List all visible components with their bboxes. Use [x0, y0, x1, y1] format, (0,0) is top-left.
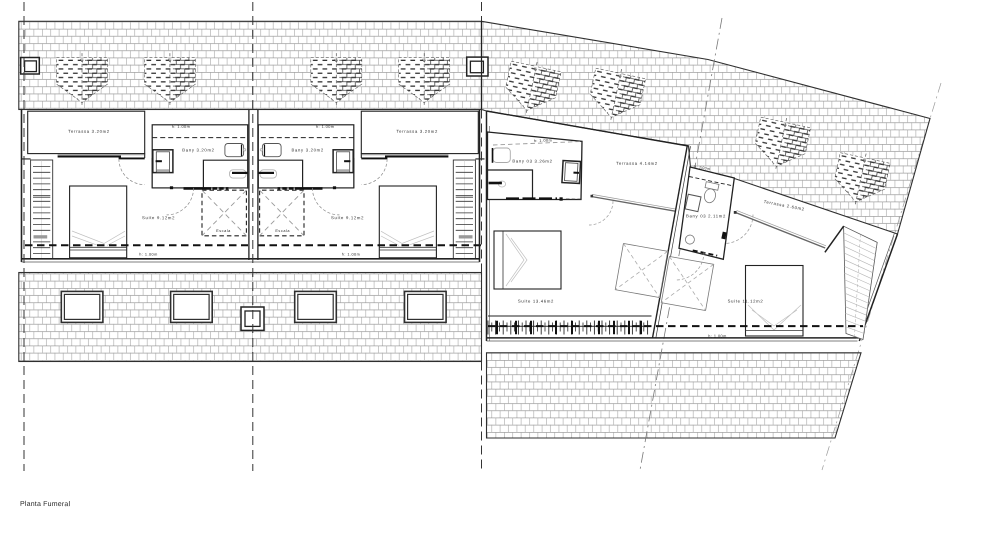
svg-text:Terrassa 3.20m2: Terrassa 3.20m2 [396, 129, 438, 134]
svg-text:Suite 13.46m2: Suite 13.46m2 [518, 299, 554, 304]
svg-text:Bany 03 3.26m2: Bany 03 3.26m2 [512, 159, 552, 164]
svg-text:Escala: Escala [275, 229, 290, 233]
svg-text:Bany 3.20m2: Bany 3.20m2 [182, 147, 214, 152]
svg-text:Planta Fumeral: Planta Fumeral [20, 501, 71, 508]
svg-text:Bany 03 2.11m2: Bany 03 2.11m2 [686, 213, 726, 218]
svg-text:h: 1.00m: h: 1.00m [708, 334, 726, 338]
svg-text:Terrassa 3.20m2: Terrassa 3.20m2 [68, 129, 110, 134]
svg-text:Suite 9.12m2: Suite 9.12m2 [331, 215, 364, 220]
svg-text:h: 1.00m: h: 1.00m [172, 125, 190, 129]
svg-text:h: 1.00m: h: 1.00m [342, 253, 360, 257]
svg-text:h: 1.00m: h: 1.00m [534, 138, 553, 143]
svg-text:Suite 9.12m2: Suite 9.12m2 [142, 215, 175, 220]
svg-text:h: 1.00m: h: 1.00m [316, 125, 334, 129]
svg-text:Terrassa 4.14m2: Terrassa 4.14m2 [616, 161, 658, 166]
svg-text:Suite 11.12m2: Suite 11.12m2 [728, 299, 764, 304]
svg-text:Bany 3.20m2: Bany 3.20m2 [291, 147, 323, 152]
svg-text:Escala: Escala [216, 229, 231, 233]
svg-text:h: 1.00m: h: 1.00m [139, 253, 157, 257]
